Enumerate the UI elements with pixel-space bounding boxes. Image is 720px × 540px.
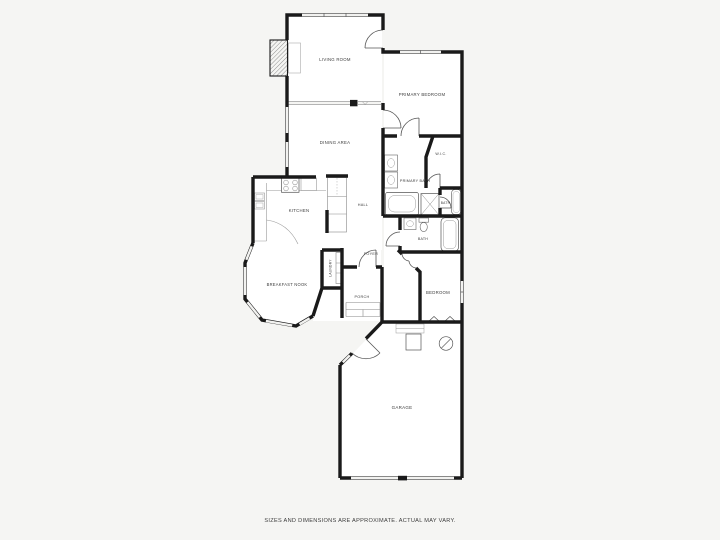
- fireplace: [270, 40, 288, 76]
- label-bath-upper: BATH: [441, 201, 451, 205]
- disclaimer-text: SIZES AND DIMENSIONS ARE APPROXIMATE. AC…: [264, 518, 455, 524]
- label-porch: PORCH: [355, 295, 370, 299]
- label-bedroom: BEDROOM: [426, 290, 450, 295]
- label-foyer: FOYER: [364, 252, 378, 256]
- bathtub: [386, 193, 419, 216]
- label-primary-bath: PRIMARY BATH: [400, 179, 430, 183]
- garage-door-stub: [398, 476, 407, 481]
- utility-cabinet: [406, 334, 421, 350]
- label-garage: GARAGE: [392, 405, 413, 410]
- label-living-room: LIVING ROOM: [319, 57, 351, 62]
- refrigerator: [301, 178, 317, 191]
- label-dining-area: DINING AREA: [320, 140, 350, 145]
- wall-stub: [350, 100, 358, 106]
- floorplan-svg: LIVING ROOM PRIMARY BEDROOM DINING AREA …: [0, 0, 720, 540]
- label-breakfast-nook: BREAKFAST NOOK: [267, 282, 308, 287]
- pantry-closet: [328, 178, 347, 233]
- fireplace-hearth: [289, 43, 301, 73]
- label-hall: HALL: [358, 203, 369, 207]
- toilet: [419, 218, 429, 222]
- floorplan-image: LIVING ROOM PRIMARY BEDROOM DINING AREA …: [0, 0, 720, 540]
- label-kitchen: KITCHEN: [289, 208, 310, 213]
- floor-fills: [245, 16, 461, 477]
- label-bath-lower: BATH: [418, 237, 428, 241]
- label-primary-bedroom: PRIMARY BEDROOM: [399, 92, 446, 97]
- bath-sink: [385, 155, 398, 171]
- label-wic: W.I.C.: [435, 152, 446, 156]
- bath2-sink: [404, 218, 416, 230]
- label-laundry: LAUNDRY: [329, 259, 333, 277]
